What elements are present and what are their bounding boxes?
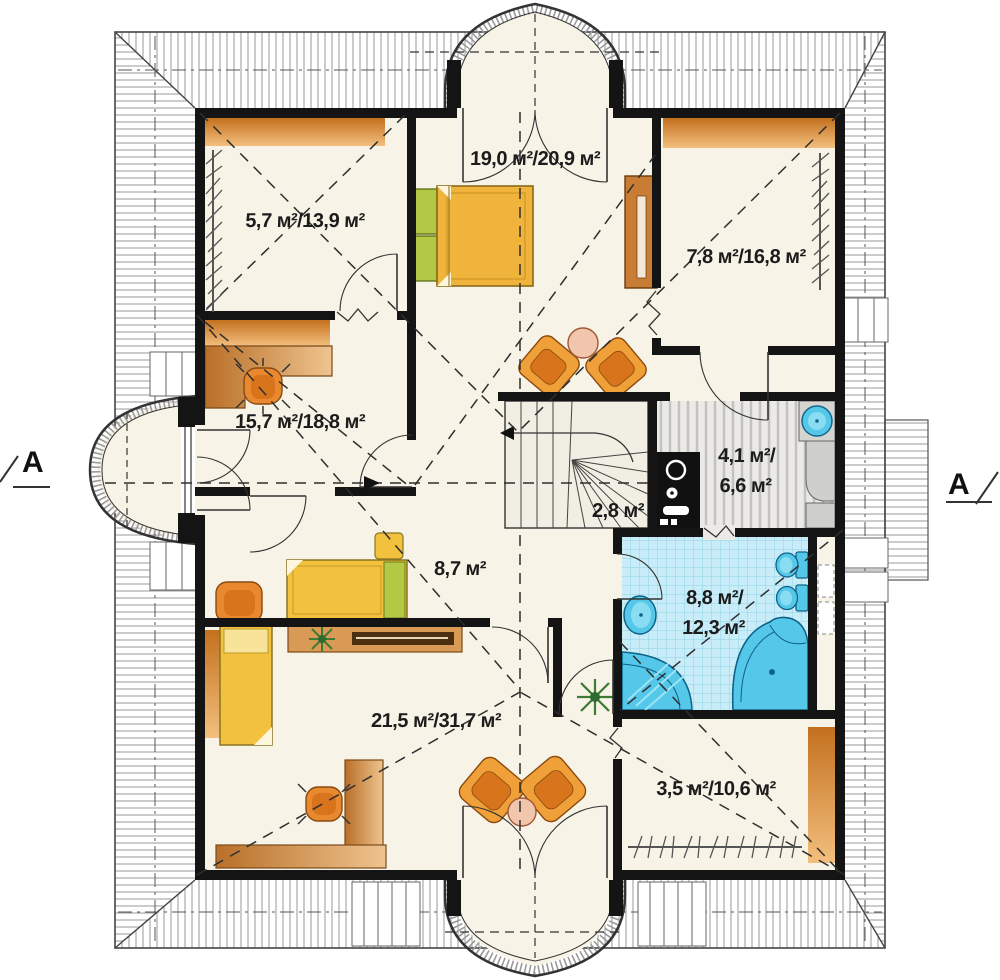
single-bed-vertical: [220, 625, 272, 745]
room-label-bathroom-line2: 12,3 м²: [633, 613, 794, 643]
armchair-hall: [216, 582, 262, 622]
bay-left: [90, 396, 197, 544]
roof-bump-right: [885, 420, 928, 580]
room-label-utility-line1: 4,1 м²/: [666, 441, 827, 471]
room-label-utility-line2: 6,6 м²: [665, 471, 826, 501]
floor-plan-drawing: [0, 0, 1000, 980]
coffee-table: [508, 798, 536, 826]
round-table: [568, 328, 598, 358]
room-label-staircase: 2,8 м²: [560, 500, 677, 523]
room-label-bathroom: 8,8 м²/ 12,3 м²: [633, 583, 795, 643]
room-label-top-left: 5,7 м²/13,9 м²: [195, 210, 416, 233]
section-marker-left: A: [0, 438, 64, 498]
floor-plan: 19,0 м²/20,9 м² 5,7 м²/13,9 м² 7,8 м²/16…: [0, 0, 1000, 980]
room-label-utility: 4,1 м²/ 6,6 м²: [665, 441, 827, 501]
utility-sink: [799, 401, 835, 441]
section-letter-right: A: [948, 468, 970, 502]
bay-bottom: [445, 872, 625, 976]
section-letter-left: A: [22, 446, 44, 480]
toilet: [776, 552, 808, 578]
single-bed-hall: [287, 560, 407, 620]
roof-window-strip: [817, 537, 835, 710]
double-bed: [437, 186, 533, 286]
section-marker-right: A: [936, 458, 1000, 518]
room-label-bathroom-line1: 8,8 м²/: [634, 583, 795, 613]
room-label-living-bottom: 21,5 м²/31,7 м²: [291, 710, 582, 733]
room-label-hall: 8,7 м²: [408, 558, 513, 581]
plant-living: [577, 679, 613, 715]
plant-hall: [309, 626, 335, 652]
room-label-mid-left: 15,7 м²/18,8 м²: [188, 411, 413, 434]
room-label-bedroom-top: 19,0 м²/20,9 м²: [395, 148, 676, 171]
room-label-wardrobe-bottom-right: 3,5 м²/10,6 м²: [606, 778, 827, 801]
room-label-top-right: 7,8 м²/16,8 м²: [636, 246, 857, 269]
